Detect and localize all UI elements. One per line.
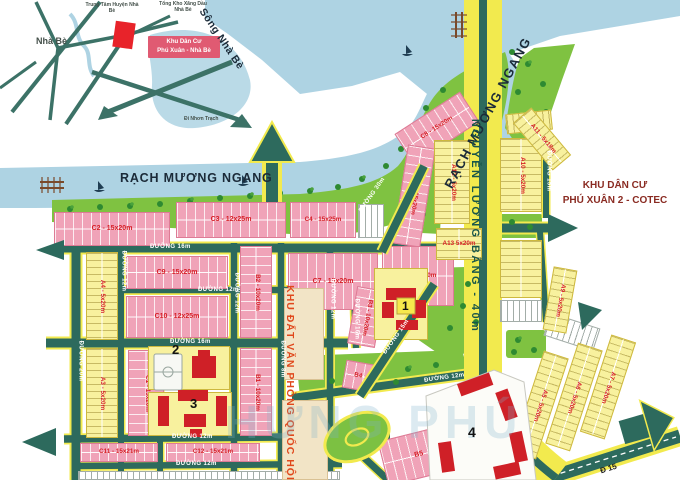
inset-project-line1: Khu Dân Cư: [166, 39, 201, 45]
building-3-number: 3: [190, 396, 197, 411]
arrow-north-icon: [250, 122, 294, 162]
boat-icon: [402, 45, 413, 56]
inset-project-box: Khu Dân Cư Phú Xuân - Nhà Bè: [148, 36, 220, 58]
street-label: ĐƯỜNG 12m: [120, 251, 126, 292]
building-1-number: 1: [402, 299, 409, 313]
boat-icon: [94, 181, 105, 192]
street-label: ĐƯỜNG 12m: [172, 434, 213, 440]
street-label: ĐƯỜNG 12m: [329, 279, 335, 320]
inset-center-label: Trung Tâm Huyện Nhà Bè: [84, 3, 140, 15]
bridge-icons: [40, 12, 467, 193]
street-label: ĐƯỜNG 16m: [353, 299, 359, 340]
boat-icons: [94, 45, 413, 192]
arrow-southwest-icon: [22, 428, 56, 456]
building-2-number: 2: [172, 342, 179, 357]
building-4: [426, 370, 536, 480]
canal-label: RẠCH MƯƠNG NGANG: [120, 171, 273, 185]
roundabout: [317, 402, 397, 471]
inset-project-line2: Phú Xuân - Nhà Bè: [157, 48, 211, 54]
arrow-southeast-small-icon: [578, 302, 602, 330]
street-label: ĐƯỜNG 16m: [150, 244, 191, 250]
street-label: ĐƯỜNG 20m: [77, 341, 83, 382]
arrow-west-icon: [36, 240, 64, 260]
office-land-label: KHU ĐẤT VĂN PHÒNG QUỐC HỘI: [284, 285, 296, 480]
arrow-southeast-big-icon: [615, 393, 680, 458]
street-label: ĐƯỜNG 12m: [233, 273, 239, 314]
bridge-icon: [40, 177, 64, 193]
map-overlay-graphics: [0, 0, 680, 480]
neighbor-line2: PHÚ XUÂN 2 - COTEC: [563, 195, 667, 206]
inset-direction-label: Đi Nhơn Trạch: [184, 117, 218, 123]
neighbor-project-label: KHU DÂN CƯ PHÚ XUÂN 2 - COTEC: [556, 179, 674, 208]
street-label: ĐƯỜNG 8m: [279, 341, 285, 378]
inset-area-label: Nhà Bè: [36, 36, 67, 46]
neighbor-line1: KHU DÂN CƯ: [583, 180, 647, 191]
master-plan-map: C2 - 15x20m C3 - 12x25m C4 - 15x25m C8 -…: [0, 0, 680, 480]
arrow-east-icon: [548, 214, 578, 242]
bridge-icon: [451, 12, 467, 38]
street-label: ĐƯỜNG 12m: [176, 461, 217, 467]
building-2: [154, 350, 216, 390]
building-4-number: 4: [468, 424, 476, 440]
street-label: ĐƯỜNG 15m: [545, 151, 551, 192]
avenue-label: NGUYỄN LƯƠNG BẰNG - 40m: [469, 119, 481, 333]
